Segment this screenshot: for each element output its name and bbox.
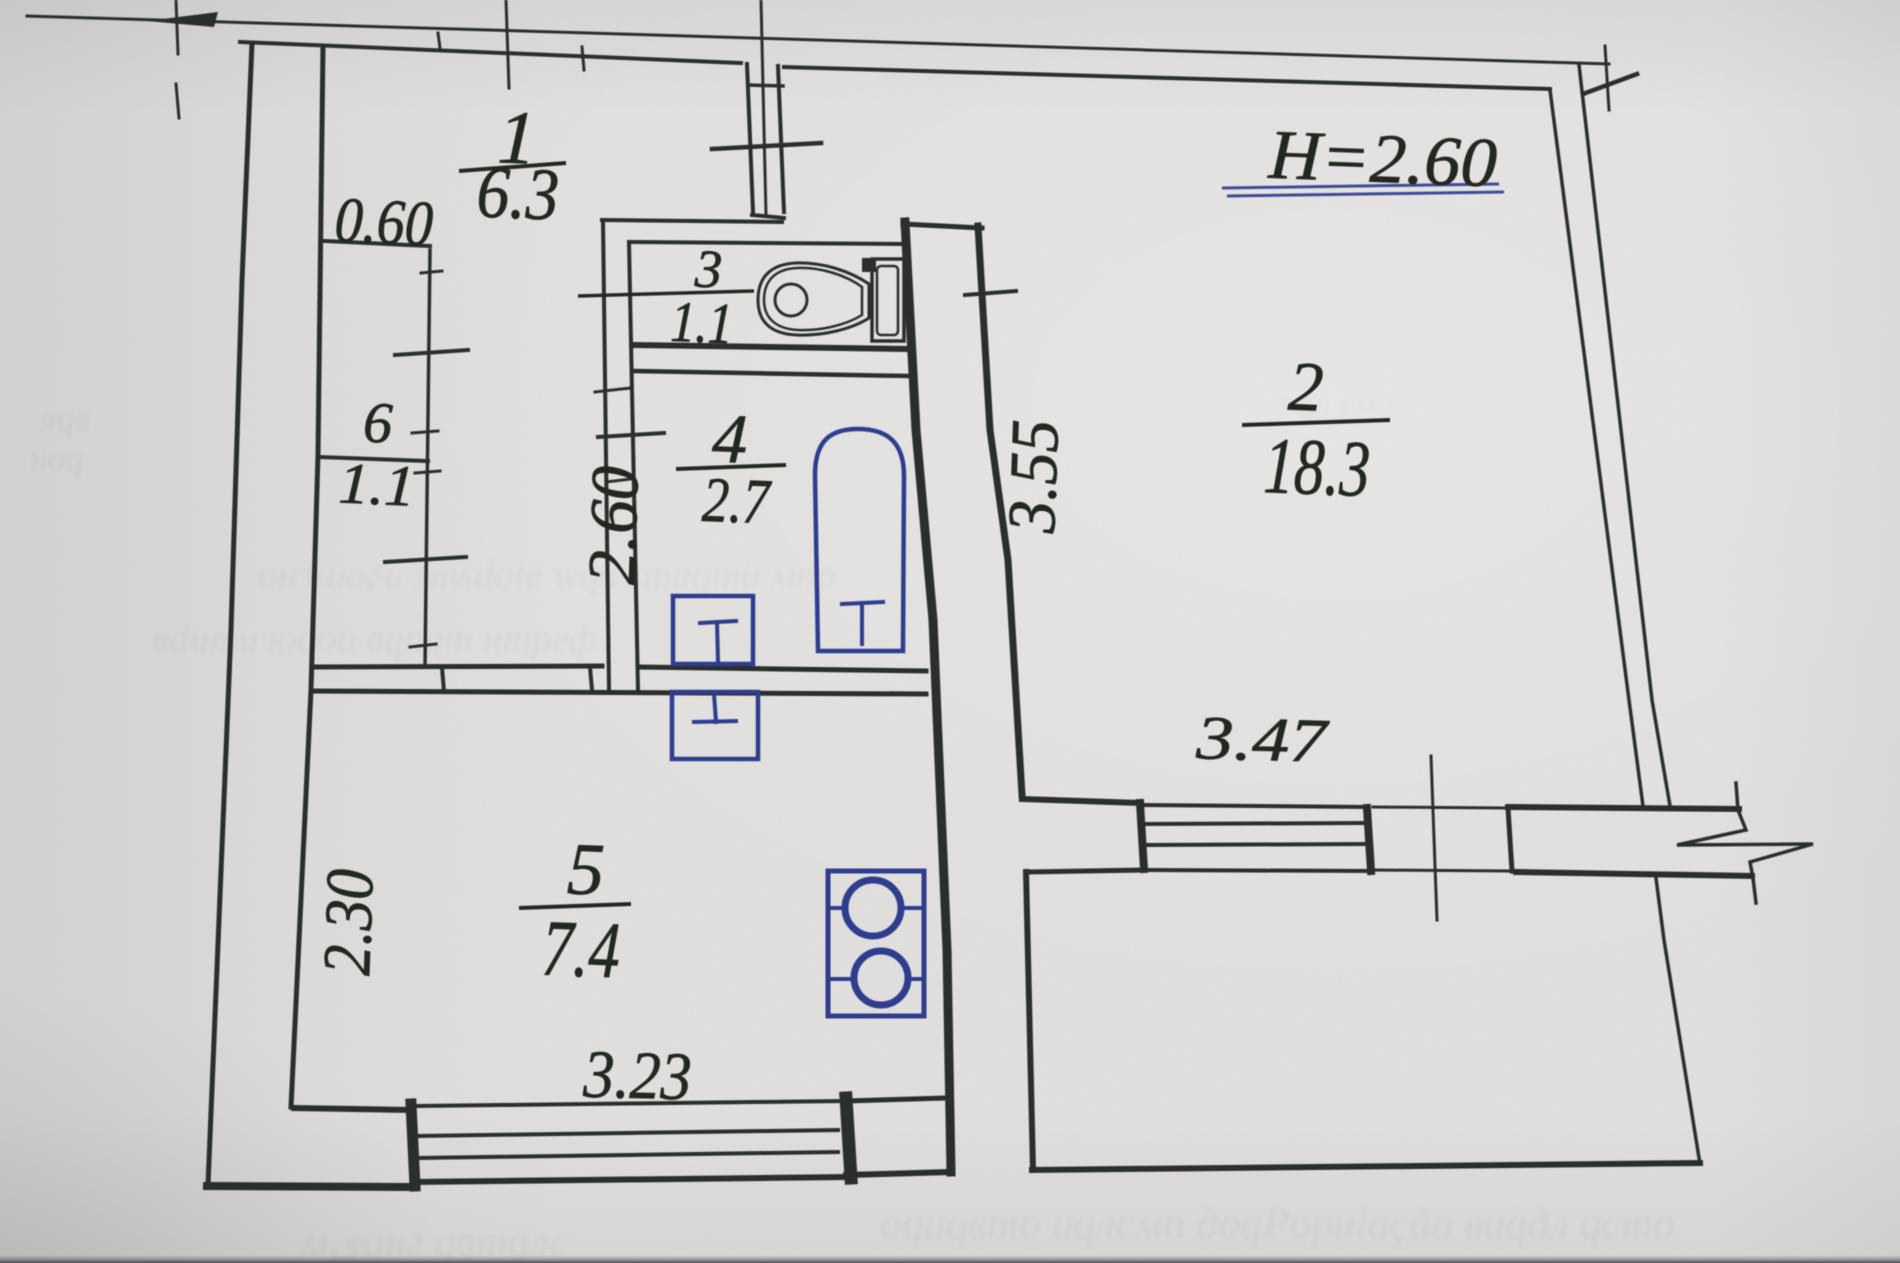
svg-text:18.3: 18.3	[1262, 422, 1371, 514]
svg-text:7.4: 7.4	[540, 905, 621, 996]
svg-text:3.47: 3.47	[1194, 704, 1331, 776]
svg-text:6: 6	[362, 389, 394, 455]
svg-text:3.23: 3.23	[582, 1036, 693, 1115]
svg-text:1.1: 1.1	[670, 289, 734, 356]
svg-text:2.60: 2.60	[573, 465, 653, 586]
svg-text:2: 2	[1287, 348, 1325, 426]
svg-text:1.1: 1.1	[337, 450, 416, 518]
svg-text:3.55: 3.55	[993, 418, 1073, 535]
svg-text:5: 5	[566, 828, 606, 911]
svg-text:2.30: 2.30	[308, 868, 388, 977]
svg-text:6.3: 6.3	[475, 151, 560, 236]
svg-text:H=2.60: H=2.60	[1266, 117, 1498, 203]
svg-text:2.7: 2.7	[701, 464, 773, 538]
svg-text:0.60: 0.60	[333, 184, 434, 259]
